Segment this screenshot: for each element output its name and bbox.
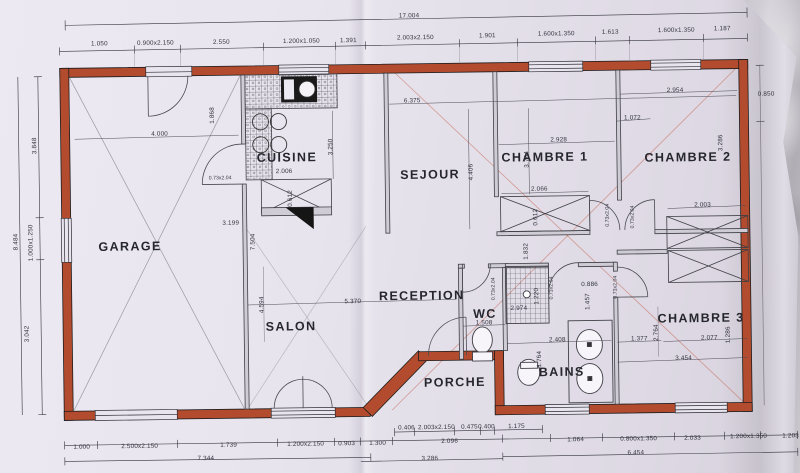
dimension-label: 2.003x2.150: [418, 424, 455, 431]
room-label-cuisine: CUISINE: [257, 150, 318, 165]
dimension-label: 2.003: [694, 201, 711, 208]
door-size-label: 0.73x2.04: [630, 206, 636, 229]
dimension-label: 8.484: [12, 234, 19, 251]
dimension-label: 1.377: [631, 335, 648, 342]
dimension-label: 1.200x2.150: [287, 441, 324, 448]
dimension-label: 3.286: [421, 455, 438, 462]
dimension-label: 1.000x1.250: [27, 224, 34, 261]
dimension-label: 1.200x1.050: [283, 38, 320, 45]
room-label-chambre-3: CHAMBRE 3: [657, 310, 744, 325]
door-size-label: 0.73x2.04: [209, 175, 232, 181]
room-label-reception: RECEPTION: [379, 288, 465, 303]
dimension-label: 2.066: [531, 186, 548, 193]
dimension-label: 5.370: [344, 298, 361, 305]
room-label-salon: SALON: [266, 319, 317, 334]
dimension-label: 0.400: [478, 423, 495, 430]
dimension-label: 1.457: [584, 293, 591, 310]
room-label-sejour: SEJOUR: [400, 167, 460, 182]
dimension-label: 3.848: [31, 137, 38, 154]
dimension-label: 4.594: [258, 296, 265, 313]
dimension-label: 1.739: [220, 442, 237, 449]
dimension-label: 1.050: [91, 40, 108, 47]
dimension-label: 4.406: [468, 164, 475, 181]
dimension-label: 1.600x1.350: [658, 27, 695, 34]
dimension-label: 2.954: [667, 87, 684, 94]
dimension-label: 0.800x1.350: [620, 435, 657, 442]
dimension-label: 1.175: [508, 423, 525, 430]
door-swings: [148, 70, 657, 411]
dimension-label: 0.475: [461, 423, 478, 430]
dimension-label: 0.850: [758, 91, 775, 98]
dimension-label: 1.508: [476, 319, 493, 326]
dimension-label: 2.764: [653, 324, 660, 341]
dimension-label: 1.832: [523, 243, 530, 260]
dimension-label: 1.764: [536, 351, 543, 368]
dimension-label: 3.454: [675, 355, 692, 362]
interior-dimension-lines: [74, 90, 747, 369]
dimension-label: 2.550: [213, 39, 230, 46]
dimension-label: 2.096: [441, 438, 458, 445]
dimension-label: 0.903: [338, 440, 355, 447]
dimension-label: 0.612: [287, 190, 294, 207]
dimension-label: 0.886: [581, 281, 598, 288]
dimension-label: 2.500x2.150: [121, 443, 158, 450]
dimension-label: 0.612: [532, 209, 539, 226]
dimension-label: 2.033: [684, 435, 701, 442]
door-size-label: 0.73x2.04: [548, 277, 554, 300]
dimension-label: 2.928: [550, 136, 567, 143]
dimension-label: 3.286: [717, 134, 724, 151]
room-label-bains: BAINS: [539, 365, 585, 380]
dimension-label: 1.901: [479, 32, 496, 39]
dimension-label: 1.220: [533, 288, 540, 305]
dimension-label: 1.203: [782, 432, 799, 439]
dimension-label: 6.454: [627, 449, 644, 456]
dimension-label: 2.408: [549, 336, 566, 343]
dimension-label: 1.187: [714, 25, 731, 32]
dimension-label: 3.042: [24, 325, 31, 342]
dimension-label: 3.250: [327, 138, 334, 155]
dimension-label: 1.000: [73, 444, 90, 451]
dimension-label: 1.600x1.350: [538, 30, 575, 37]
dimension-label: 2.077: [701, 334, 718, 341]
plan-drawing: [0, 0, 800, 473]
dimension-label: 1.286: [725, 326, 732, 343]
door-size-label: 0.73x2.04: [490, 277, 496, 300]
dimension-label: 4.000: [151, 131, 168, 138]
dimension-label: 0.406: [398, 424, 415, 431]
dimension-label: 1.300: [369, 440, 386, 447]
dimension-label: 1.613: [602, 29, 619, 36]
dimension-label: 2.974: [510, 305, 527, 312]
dimension-label: 7.344: [197, 455, 214, 462]
room-label-porche: PORCHE: [424, 375, 486, 390]
dimension-label: 1.868: [209, 107, 216, 124]
dimension-label: 6.375: [404, 97, 421, 104]
floor-plan-photo: GARAGECUISINESEJOURCHAMBRE 1CHAMBRE 2SAL…: [0, 0, 800, 473]
door-size-label: 0.73x2.04: [612, 276, 618, 299]
dimension-label: 3.764: [523, 151, 530, 168]
dimension-label: 1.064: [567, 436, 584, 443]
dimension-label: 3.199: [222, 220, 239, 227]
dimension-label: 17.004: [399, 12, 420, 19]
room-label-chambre-1: CHAMBRE 1: [501, 150, 588, 165]
floor-plan: GARAGECUISINESEJOURCHAMBRE 1CHAMBRE 2SAL…: [0, 0, 800, 473]
dimension-label: 2.003x2.150: [397, 34, 434, 41]
dimension-label: 1.072: [624, 114, 641, 121]
dimension-label: 7.504: [249, 233, 256, 250]
dimension-label: 1.200x1.350: [730, 433, 767, 440]
dimension-label: 0.900x2.150: [137, 39, 174, 46]
dimension-label: 2.006: [276, 168, 293, 175]
door-size-label: 0.73x2.04: [605, 204, 611, 227]
room-label-chambre-2: CHAMBRE 2: [644, 150, 731, 165]
room-label-garage: GARAGE: [98, 239, 161, 254]
dimension-label: 1.391: [340, 37, 357, 44]
